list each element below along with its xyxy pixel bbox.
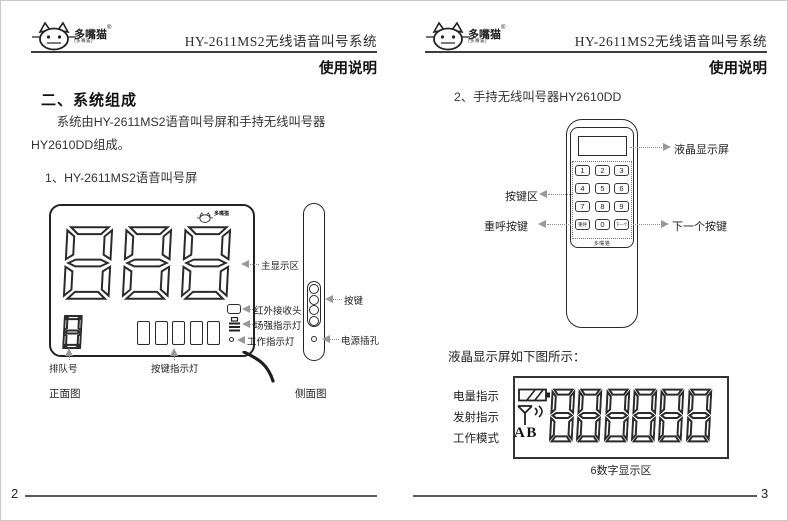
panel-cat-logo-icon bbox=[197, 210, 213, 221]
label-keypad: 按键区 bbox=[505, 188, 538, 204]
arrow-left-icon bbox=[539, 190, 547, 198]
lcd-digits bbox=[550, 388, 711, 443]
remote-key-8: 8 bbox=[595, 201, 610, 212]
key-indicator-led bbox=[190, 321, 203, 345]
remote-key-9: 9 bbox=[614, 201, 629, 212]
leader-line bbox=[174, 356, 175, 360]
arrow-right-icon bbox=[661, 220, 669, 228]
leader-line bbox=[69, 356, 70, 360]
header-rule-right bbox=[425, 51, 767, 53]
arrow-left-icon bbox=[242, 320, 250, 328]
doc-title-right: HY-2611MS2无线语音叫号系统 bbox=[531, 30, 767, 50]
antenna-icon bbox=[517, 404, 545, 426]
caption-digit-area: 6数字显示区 bbox=[513, 462, 729, 478]
leader-line bbox=[547, 224, 573, 225]
remote-key-5: 5 bbox=[595, 183, 610, 194]
arrow-up-icon bbox=[65, 348, 73, 356]
signal-bars-icon bbox=[228, 317, 241, 332]
cat-logo-icon bbox=[32, 21, 76, 51]
remote-key-2: 2 bbox=[595, 165, 610, 176]
remote-key-recall: 重呼 bbox=[575, 219, 590, 230]
label-next-key: 下一个按键 bbox=[672, 218, 727, 234]
leader-line bbox=[333, 299, 342, 300]
footer-line-right bbox=[413, 495, 757, 497]
cat-logo-icon bbox=[426, 21, 470, 51]
leader-line bbox=[250, 264, 259, 265]
caption-front-view: 正面图 bbox=[49, 386, 81, 401]
label-queue-number: 排队号 bbox=[49, 361, 78, 375]
arrow-left-icon bbox=[242, 305, 250, 313]
label-transmit: 发射指示 bbox=[453, 409, 499, 425]
side-button bbox=[309, 316, 319, 326]
mode-letters: AB bbox=[514, 425, 538, 442]
key-indicator-led bbox=[137, 321, 150, 345]
label-work-indicator: 工作指示灯 bbox=[247, 334, 295, 348]
registered-mark: ® bbox=[107, 25, 111, 31]
item-heading-2: 2、手持无线叫号器HY2610DD bbox=[454, 87, 621, 105]
doc-title-left: HY-2611MS2无线语音叫号系统 bbox=[141, 30, 377, 50]
registered-mark: ® bbox=[501, 25, 505, 31]
page-number-left: 2 bbox=[11, 486, 18, 501]
doc-subtitle-left: 使用说明 bbox=[201, 57, 377, 78]
leader-line bbox=[250, 309, 253, 310]
leader-line bbox=[630, 147, 662, 148]
arrow-left-icon bbox=[538, 220, 546, 228]
page-number-right: 3 bbox=[761, 486, 768, 501]
label-side-buttons: 按键 bbox=[344, 293, 363, 307]
remote-key-4: 4 bbox=[575, 183, 590, 194]
remote-key-6: 6 bbox=[614, 183, 629, 194]
battery-icon bbox=[518, 387, 551, 403]
label-key-indicators: 按键指示灯 bbox=[151, 361, 199, 375]
key-indicator-led bbox=[155, 321, 168, 345]
section-heading: 二、系统组成 bbox=[41, 89, 137, 110]
remote-key-next: 下一个 bbox=[614, 219, 629, 230]
power-jack-hole bbox=[311, 336, 317, 342]
side-button bbox=[309, 305, 319, 315]
label-lcd: 液晶显示屏 bbox=[674, 141, 729, 157]
brand-subtext: (多嘴猫) bbox=[468, 38, 487, 44]
side-button bbox=[309, 295, 319, 305]
remote-brand-text: 多嘴猫 bbox=[570, 240, 634, 247]
remote-key-7: 7 bbox=[575, 201, 590, 212]
manual-spread: 多嘴猫® (多嘴猫) HY-2611MS2无线语音叫号系统 使用说明 二、系统组… bbox=[0, 0, 788, 521]
item-heading-1: 1、HY-2611MS2语音叫号屏 bbox=[45, 168, 197, 186]
brand-subtext: (多嘴猫) bbox=[74, 38, 93, 44]
caption-side-view: 侧面图 bbox=[295, 386, 327, 401]
arrow-left-icon bbox=[325, 295, 333, 303]
power-cable bbox=[241, 351, 286, 383]
remote-key-1: 1 bbox=[575, 165, 590, 176]
remote-lcd bbox=[578, 136, 627, 156]
leader-line bbox=[631, 224, 660, 225]
footer-line-left bbox=[25, 495, 377, 497]
leader-line bbox=[250, 324, 253, 325]
intro-paragraph: 系统由HY-2611MS2语音叫号屏和手持无线叫号器HY2610DD组成。 bbox=[31, 111, 369, 157]
key-indicator-led bbox=[207, 321, 220, 345]
remote-key-3: 3 bbox=[614, 165, 629, 176]
label-work-mode: 工作模式 bbox=[453, 430, 499, 446]
arrow-left-icon bbox=[322, 335, 330, 343]
label-recall-key: 重呼按键 bbox=[484, 218, 528, 234]
label-ir-receiver: 红外接收头 bbox=[254, 303, 302, 317]
leader-line bbox=[548, 194, 572, 195]
doc-subtitle-right: 使用说明 bbox=[591, 57, 767, 78]
arrow-right-icon bbox=[663, 143, 671, 151]
panel-brand-text: 多嘴猫 bbox=[214, 210, 229, 217]
key-indicator-led bbox=[172, 321, 185, 345]
arrow-left-icon bbox=[237, 336, 245, 344]
label-battery: 电量指示 bbox=[453, 388, 499, 404]
lcd-intro-text: 液晶显示屏如下图所示： bbox=[448, 346, 586, 365]
label-signal-indicator: 场强指示灯 bbox=[254, 318, 302, 332]
leader-line bbox=[330, 339, 339, 340]
ir-receiver bbox=[227, 304, 241, 314]
arrow-up-icon bbox=[170, 348, 178, 356]
label-power-jack: 电源插孔 bbox=[341, 333, 379, 347]
header-rule-left bbox=[31, 51, 377, 53]
work-led bbox=[229, 337, 234, 342]
main-display-digits bbox=[63, 225, 231, 301]
label-main-display: 主显示区 bbox=[261, 258, 299, 272]
arrow-left-icon bbox=[241, 260, 249, 268]
side-button bbox=[309, 284, 319, 294]
queue-number-digit bbox=[63, 315, 82, 349]
remote-key-0: 0 bbox=[595, 219, 610, 230]
